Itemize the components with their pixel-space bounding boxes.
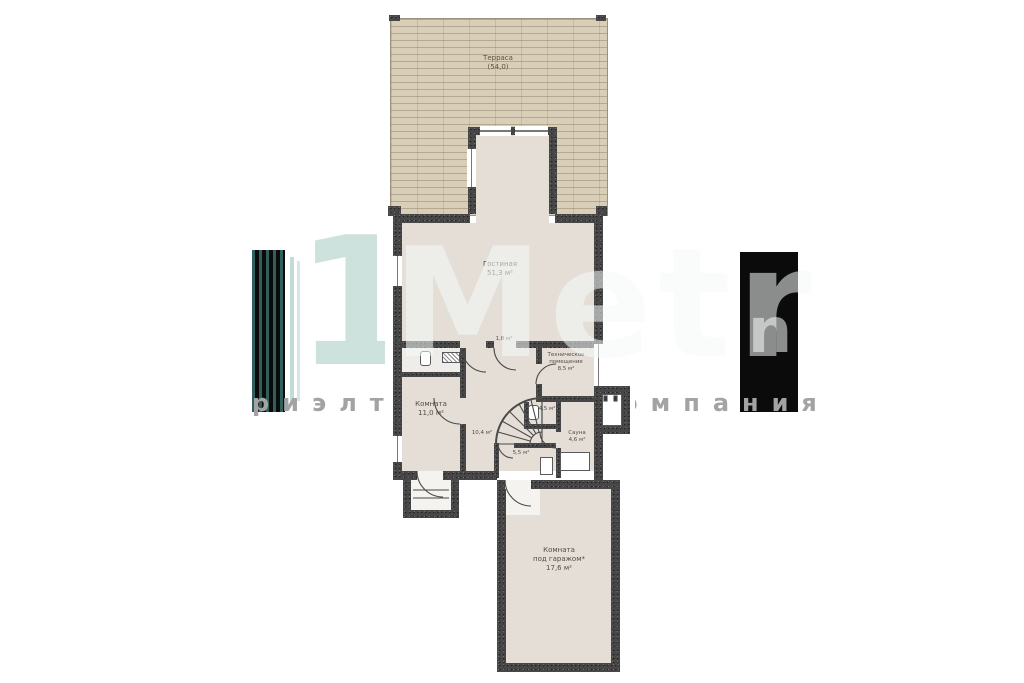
room-label-room: Комната 11,0 м² bbox=[406, 400, 456, 418]
shower-tray-icon bbox=[540, 457, 553, 475]
bay-interior bbox=[476, 135, 549, 227]
wall bbox=[611, 480, 620, 672]
window bbox=[480, 126, 511, 136]
wall bbox=[497, 663, 620, 672]
garage-room-interior bbox=[506, 489, 611, 663]
wall bbox=[497, 480, 506, 672]
radiator-icon bbox=[442, 352, 460, 363]
window bbox=[467, 149, 476, 187]
room-label-garage: Комната под гаражом* 17,6 м² bbox=[516, 546, 602, 573]
porch-interior bbox=[411, 480, 451, 510]
room-label-sauna: Сауна 4,6 м² bbox=[560, 430, 594, 444]
room-label-living: Гостиная 51,3 м² bbox=[455, 260, 545, 278]
wall bbox=[402, 341, 460, 348]
room-label-closet: 1,8 м² bbox=[490, 336, 518, 343]
wall bbox=[402, 372, 460, 377]
wall bbox=[403, 510, 459, 518]
window bbox=[515, 126, 548, 136]
wall bbox=[596, 15, 606, 21]
room-label-shower: 5,5 м² bbox=[506, 450, 536, 457]
sauna-bench-icon bbox=[560, 452, 590, 471]
room-label-hall: 10,4 м² bbox=[466, 430, 498, 437]
floorplan-page: 1 n риэлторская компания bbox=[0, 0, 1024, 683]
room-label-terrace: Терраса (54,0) bbox=[452, 54, 544, 72]
wall bbox=[516, 341, 536, 348]
wall bbox=[494, 443, 499, 478]
room-label-tech: Техническое помещение 8,5 м² bbox=[538, 352, 594, 373]
window bbox=[393, 436, 402, 462]
pier-inset bbox=[602, 394, 622, 426]
door-opening bbox=[460, 398, 466, 424]
window bbox=[594, 344, 603, 386]
wall bbox=[549, 127, 557, 214]
floor-plan: Терраса (54,0) Гостиная 51,3 м² 1,8 м² Т… bbox=[0, 0, 1024, 683]
door-opening bbox=[498, 443, 514, 448]
wall bbox=[536, 396, 594, 402]
window bbox=[393, 256, 402, 286]
wall bbox=[393, 214, 470, 223]
wall bbox=[389, 15, 400, 21]
entry-nook bbox=[506, 489, 540, 515]
wall bbox=[536, 341, 594, 348]
room-label-wc: 4,5 м² bbox=[536, 406, 558, 413]
door-opening bbox=[505, 480, 531, 489]
toilet-icon bbox=[420, 351, 431, 366]
door-opening bbox=[417, 471, 443, 480]
